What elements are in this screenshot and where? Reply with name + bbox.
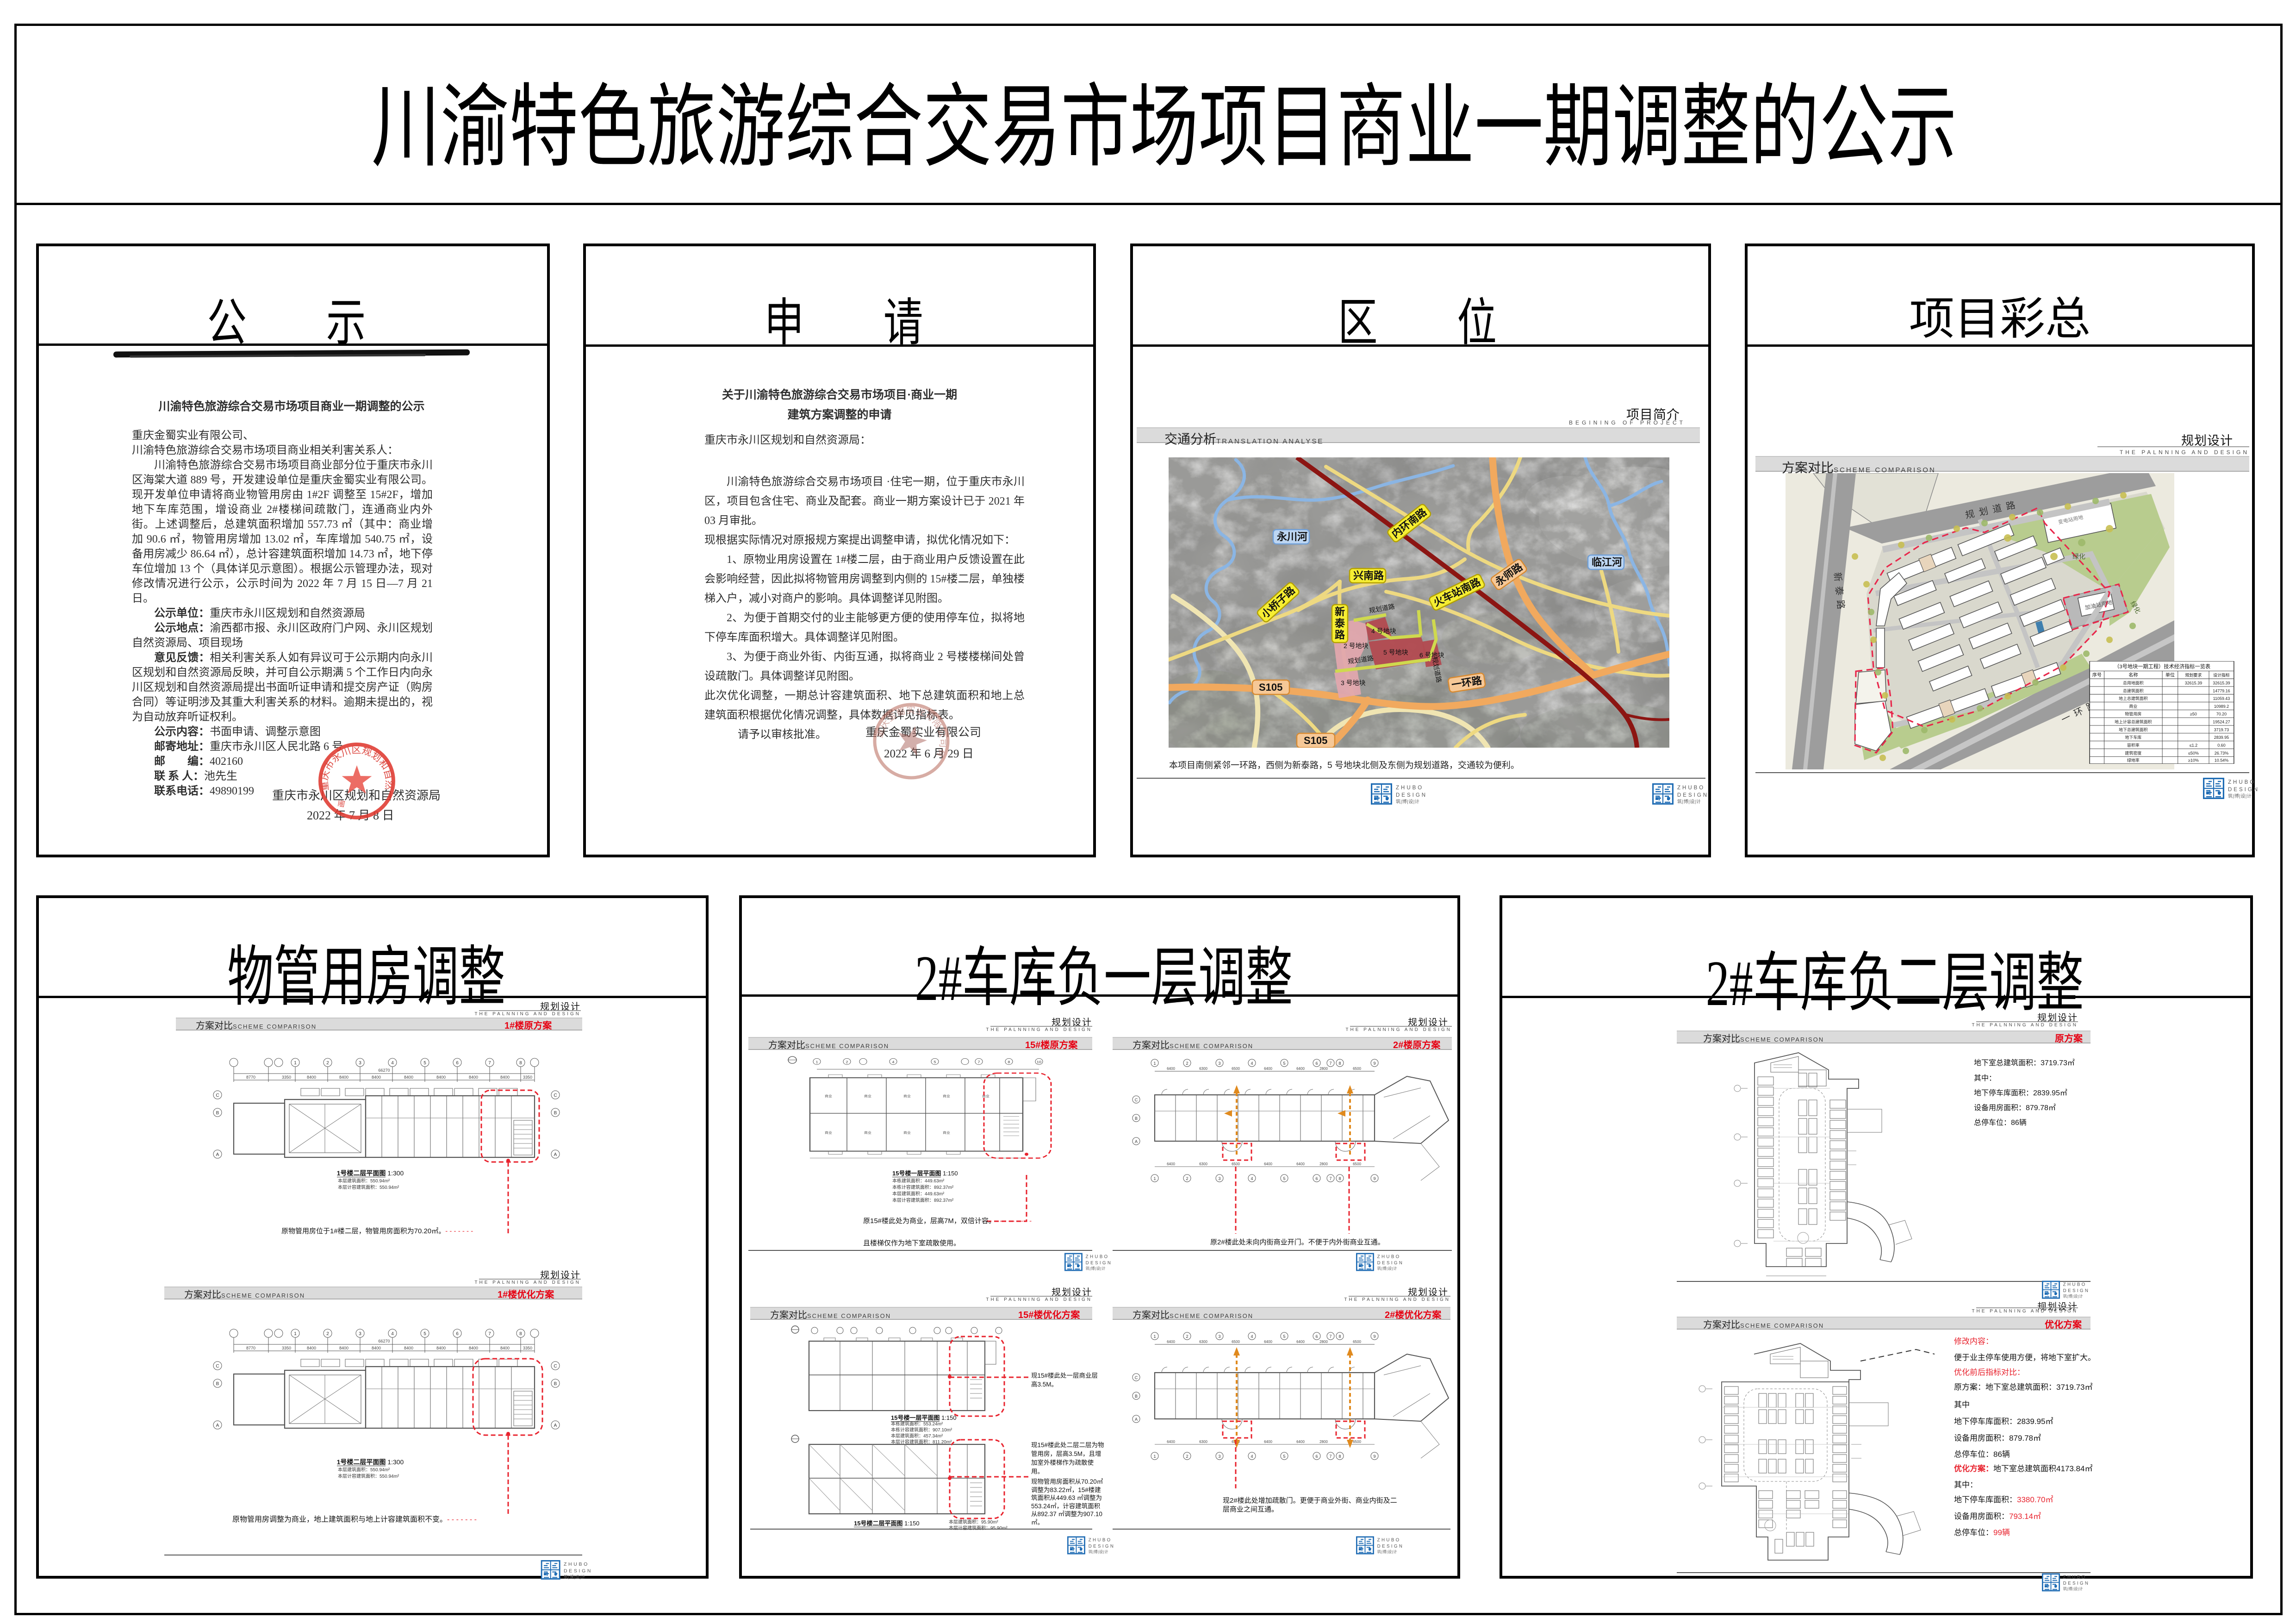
svg-text:4: 4 [1251, 1061, 1253, 1066]
svg-text:2 号地块: 2 号地块 [1344, 642, 1369, 650]
svg-text:8400: 8400 [436, 1346, 446, 1350]
svg-text:商业: 商业 [943, 1131, 950, 1135]
svg-text:8: 8 [519, 1331, 522, 1337]
svg-text:2: 2 [326, 1061, 329, 1066]
svg-text:B: B [216, 1111, 219, 1116]
svg-text:6: 6 [456, 1331, 459, 1337]
svg-text:6400: 6400 [1264, 1067, 1272, 1071]
svg-text:规划要求: 规划要求 [2185, 673, 2202, 678]
svg-text:名称: 名称 [2128, 672, 2138, 678]
svg-text:8400: 8400 [339, 1075, 348, 1080]
svg-text:地上总建筑面积: 地上总建筑面积 [2119, 696, 2148, 701]
svg-text:临江河: 临江河 [1592, 556, 1622, 568]
svg-text:5: 5 [423, 1331, 426, 1337]
svg-text:≤50%: ≤50% [2188, 751, 2199, 756]
svg-text:地下车库: 地下车库 [2125, 735, 2141, 740]
svg-text:9: 9 [1373, 1454, 1375, 1459]
svg-text:1: 1 [1153, 1061, 1156, 1066]
svg-text:≥50: ≥50 [2190, 712, 2197, 717]
svg-text:6400: 6400 [1296, 1440, 1305, 1444]
svg-text:2: 2 [1186, 1454, 1188, 1459]
svg-text:商业: 商业 [864, 1094, 871, 1098]
svg-text:3: 3 [359, 1061, 361, 1066]
svg-text:≤1.2: ≤1.2 [2190, 743, 2197, 748]
svg-text:5 号地块: 5 号地块 [1383, 649, 1408, 656]
svg-text:26.73%: 26.73% [2215, 751, 2228, 756]
svg-text:8400: 8400 [469, 1346, 478, 1350]
svg-text:6400: 6400 [1296, 1067, 1305, 1071]
svg-text:6500: 6500 [1353, 1340, 1361, 1344]
svg-text:路: 路 [1335, 629, 1345, 641]
svg-text:8: 8 [1338, 1061, 1341, 1066]
svg-text:5: 5 [1283, 1176, 1285, 1181]
svg-text:8400: 8400 [404, 1075, 413, 1080]
svg-text:10.54%: 10.54% [2215, 758, 2228, 763]
svg-text:A: A [1135, 1417, 1138, 1422]
svg-text:商业: 商业 [825, 1131, 832, 1135]
svg-text:8: 8 [1338, 1176, 1341, 1181]
svg-text:新: 新 [1335, 606, 1345, 618]
svg-text:4 号地块: 4 号地块 [1371, 627, 1396, 635]
svg-text:B: B [216, 1381, 219, 1387]
svg-text:6500: 6500 [1232, 1162, 1240, 1166]
svg-text:10989.2: 10989.2 [2214, 704, 2229, 709]
svg-text:9: 9 [1373, 1061, 1375, 1066]
svg-text:A: A [1135, 1139, 1138, 1144]
svg-text:5: 5 [933, 1060, 936, 1064]
svg-text:3350: 3350 [282, 1346, 291, 1350]
svg-text:2800: 2800 [1319, 1340, 1328, 1344]
svg-text:1: 1 [1153, 1454, 1156, 1459]
svg-text:兴南路: 兴南路 [1353, 570, 1384, 581]
svg-text:8400: 8400 [436, 1075, 446, 1080]
svg-text:B: B [1135, 1394, 1138, 1399]
svg-text:总用地面积: 总用地面积 [2123, 680, 2144, 685]
svg-text:B: B [554, 1111, 557, 1116]
svg-text:6400: 6400 [1264, 1162, 1272, 1166]
svg-text:永川河: 永川河 [1277, 531, 1307, 543]
svg-text:地下总建筑面积: 地下总建筑面积 [2119, 727, 2148, 732]
svg-text:6500: 6500 [1353, 1440, 1361, 1444]
svg-text:C: C [554, 1364, 557, 1369]
svg-text:1: 1 [294, 1061, 297, 1066]
svg-text:2: 2 [1186, 1061, 1188, 1066]
svg-text:5: 5 [1283, 1061, 1285, 1066]
svg-text:商业: 商业 [2129, 704, 2137, 709]
svg-text:6500: 6500 [1232, 1067, 1240, 1071]
svg-text:6: 6 [1315, 1176, 1318, 1181]
svg-text:8: 8 [519, 1061, 522, 1066]
svg-text:4: 4 [391, 1061, 394, 1066]
svg-text:建筑密度: 建筑密度 [2125, 750, 2141, 756]
svg-text:（3号地块一期工程）技术经济指标一览表: （3号地块一期工程）技术经济指标一览表 [2114, 663, 2210, 670]
svg-text:1: 1 [1153, 1334, 1156, 1339]
svg-text:7: 7 [977, 1060, 980, 1064]
svg-text:2: 2 [846, 1060, 848, 1064]
svg-text:A: A [554, 1152, 557, 1157]
svg-text:6400: 6400 [1167, 1162, 1175, 1166]
svg-text:≥10%: ≥10% [2188, 758, 2199, 763]
svg-text:S105: S105 [1304, 735, 1327, 746]
svg-text:6400: 6400 [1296, 1162, 1305, 1166]
svg-text:6300: 6300 [1199, 1440, 1207, 1444]
svg-text:容积率: 容积率 [2127, 743, 2140, 748]
svg-text:3: 3 [1218, 1061, 1220, 1066]
svg-text:C: C [554, 1093, 557, 1098]
svg-text:3350: 3350 [282, 1075, 291, 1080]
svg-text:70.20: 70.20 [2216, 712, 2227, 717]
svg-text:B: B [554, 1381, 557, 1387]
svg-text:A: A [216, 1423, 219, 1428]
svg-text:9: 9 [1373, 1334, 1375, 1339]
svg-text:C: C [216, 1093, 219, 1098]
svg-text:8770: 8770 [246, 1346, 255, 1350]
svg-text:商业: 商业 [982, 1094, 989, 1098]
svg-text:5: 5 [1283, 1334, 1285, 1339]
svg-text:2: 2 [1186, 1334, 1188, 1339]
svg-text:8400: 8400 [307, 1075, 316, 1080]
svg-text:14779.16: 14779.16 [2213, 688, 2230, 693]
svg-text:8: 8 [1008, 1060, 1010, 1064]
svg-text:泰: 泰 [1334, 618, 1345, 629]
svg-text:8400: 8400 [500, 1075, 510, 1080]
svg-text:C: C [216, 1364, 219, 1369]
svg-text:8: 8 [1338, 1334, 1341, 1339]
svg-text:3 号地块: 3 号地块 [1341, 679, 1366, 687]
svg-text:序号: 序号 [2092, 672, 2102, 678]
svg-text:C: C [1135, 1375, 1138, 1380]
svg-text:1: 1 [815, 1060, 818, 1064]
svg-text:2839.95: 2839.95 [2214, 735, 2229, 740]
svg-text:画: 画 [337, 800, 347, 808]
svg-text:8: 8 [1338, 1454, 1341, 1459]
svg-text:8400: 8400 [500, 1346, 510, 1350]
svg-text:3719.73: 3719.73 [2214, 727, 2229, 732]
svg-text:7: 7 [1329, 1176, 1332, 1181]
svg-text:绿地率: 绿地率 [2127, 758, 2140, 763]
svg-text:2: 2 [326, 1331, 329, 1337]
svg-text:8400: 8400 [469, 1075, 478, 1080]
svg-text:4: 4 [1251, 1176, 1253, 1181]
svg-text:4: 4 [1251, 1454, 1253, 1459]
svg-text:6500: 6500 [1353, 1162, 1361, 1166]
svg-text:7: 7 [488, 1061, 491, 1066]
svg-text:单位: 单位 [2165, 672, 2175, 678]
svg-text:66270: 66270 [378, 1339, 390, 1343]
svg-text:2800: 2800 [1319, 1067, 1328, 1071]
svg-text:B: B [1135, 1116, 1138, 1121]
svg-text:6300: 6300 [1199, 1067, 1207, 1071]
svg-text:6: 6 [1315, 1061, 1318, 1066]
svg-text:19524.27: 19524.27 [2213, 720, 2230, 725]
svg-text:7: 7 [1329, 1061, 1332, 1066]
svg-text:商业: 商业 [903, 1131, 911, 1135]
svg-text:8400: 8400 [307, 1346, 316, 1350]
svg-text:设计指标: 设计指标 [2213, 673, 2230, 678]
svg-text:商业: 商业 [864, 1131, 871, 1135]
svg-text:A: A [554, 1423, 557, 1428]
svg-text:8400: 8400 [404, 1346, 413, 1350]
svg-text:物管用房: 物管用房 [2125, 712, 2141, 717]
svg-text:8400: 8400 [339, 1346, 348, 1350]
svg-text:7: 7 [1329, 1334, 1332, 1339]
svg-text:6: 6 [456, 1061, 459, 1066]
svg-text:6400: 6400 [1167, 1340, 1175, 1344]
svg-text:10: 10 [1037, 1060, 1041, 1064]
svg-text:8400: 8400 [372, 1075, 381, 1080]
svg-text:3: 3 [359, 1331, 361, 1337]
svg-text:6400: 6400 [1167, 1067, 1175, 1071]
svg-text:2800: 2800 [1319, 1162, 1328, 1166]
svg-text:2: 2 [1186, 1176, 1188, 1181]
svg-text:6400: 6400 [1264, 1340, 1272, 1344]
svg-text:A: A [216, 1152, 219, 1157]
svg-text:6400: 6400 [1264, 1440, 1272, 1444]
svg-text:4: 4 [391, 1331, 394, 1337]
svg-text:6500: 6500 [1353, 1067, 1361, 1071]
svg-text:7: 7 [488, 1331, 491, 1337]
svg-text:1: 1 [1153, 1176, 1156, 1181]
svg-text:7: 7 [1329, 1454, 1332, 1459]
svg-text:6500: 6500 [1232, 1340, 1240, 1344]
svg-text:3350: 3350 [523, 1346, 532, 1350]
svg-text:2800: 2800 [1319, 1440, 1328, 1444]
svg-text:6: 6 [1315, 1454, 1318, 1459]
svg-text:商业: 商业 [903, 1094, 911, 1098]
svg-text:S105: S105 [1259, 681, 1282, 693]
svg-text:绿化: 绿化 [2072, 553, 2085, 560]
svg-text:5: 5 [1283, 1454, 1285, 1459]
svg-text:6: 6 [1315, 1334, 1318, 1339]
svg-text:11059.43: 11059.43 [2213, 696, 2230, 701]
svg-text:6400: 6400 [1296, 1340, 1305, 1344]
svg-text:0.60: 0.60 [2217, 743, 2225, 748]
svg-text:6400: 6400 [1167, 1440, 1175, 1444]
svg-text:商业: 商业 [825, 1094, 832, 1098]
svg-text:商业: 商业 [943, 1094, 950, 1098]
svg-text:4: 4 [892, 1060, 894, 1064]
svg-text:6300: 6300 [1199, 1162, 1207, 1166]
svg-text:3: 3 [1218, 1176, 1220, 1181]
svg-text:32615.39: 32615.39 [2213, 681, 2230, 685]
svg-text:32615.39: 32615.39 [2185, 681, 2202, 685]
svg-text:8400: 8400 [372, 1346, 381, 1350]
svg-text:总建筑面积: 总建筑面积 [2123, 688, 2144, 693]
svg-text:地上计容总建筑面积: 地上计容总建筑面积 [2115, 719, 2152, 725]
svg-text:3350: 3350 [523, 1075, 532, 1080]
svg-text:4: 4 [1251, 1334, 1253, 1339]
svg-text:C: C [1135, 1098, 1138, 1102]
svg-text:66270: 66270 [378, 1068, 390, 1073]
svg-text:5: 5 [423, 1061, 426, 1066]
svg-text:3: 3 [1218, 1454, 1220, 1459]
svg-text:1: 1 [294, 1331, 297, 1337]
svg-text:6300: 6300 [1199, 1340, 1207, 1344]
svg-text:3: 3 [1218, 1334, 1220, 1339]
svg-text:8770: 8770 [246, 1075, 255, 1080]
svg-text:9: 9 [1373, 1176, 1375, 1181]
